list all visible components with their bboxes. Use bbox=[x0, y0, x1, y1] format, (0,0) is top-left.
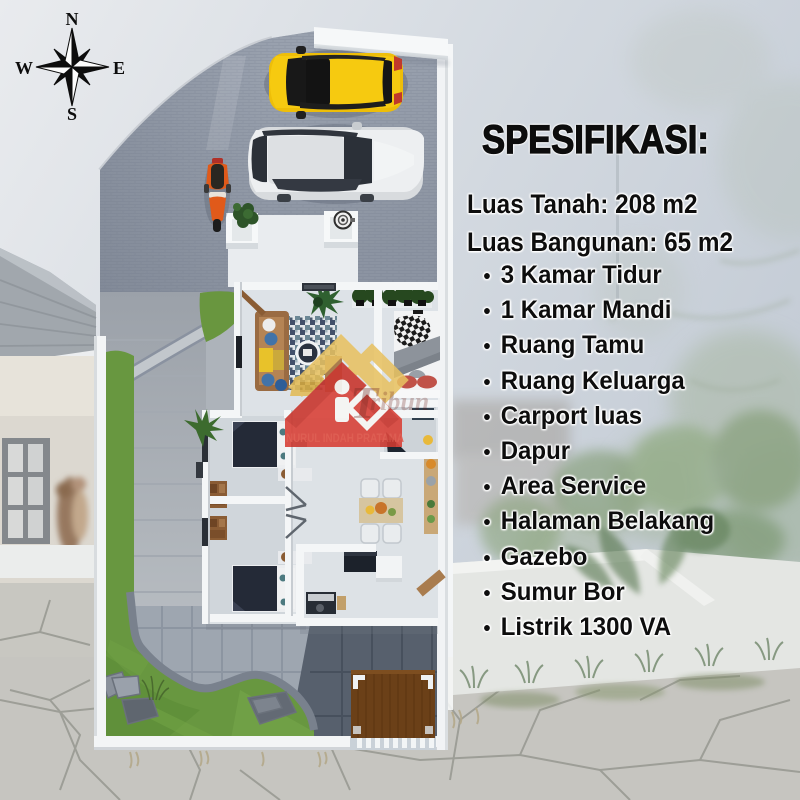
svg-text:NURUL INDAH PRATAMA: NURUL INDAH PRATAMA bbox=[286, 431, 404, 445]
svg-text:ribun: ribun bbox=[370, 387, 429, 416]
svg-text:N: N bbox=[66, 9, 79, 29]
svg-text:W: W bbox=[15, 58, 33, 78]
svg-text:E: E bbox=[113, 58, 125, 78]
svg-text:S: S bbox=[67, 104, 77, 124]
